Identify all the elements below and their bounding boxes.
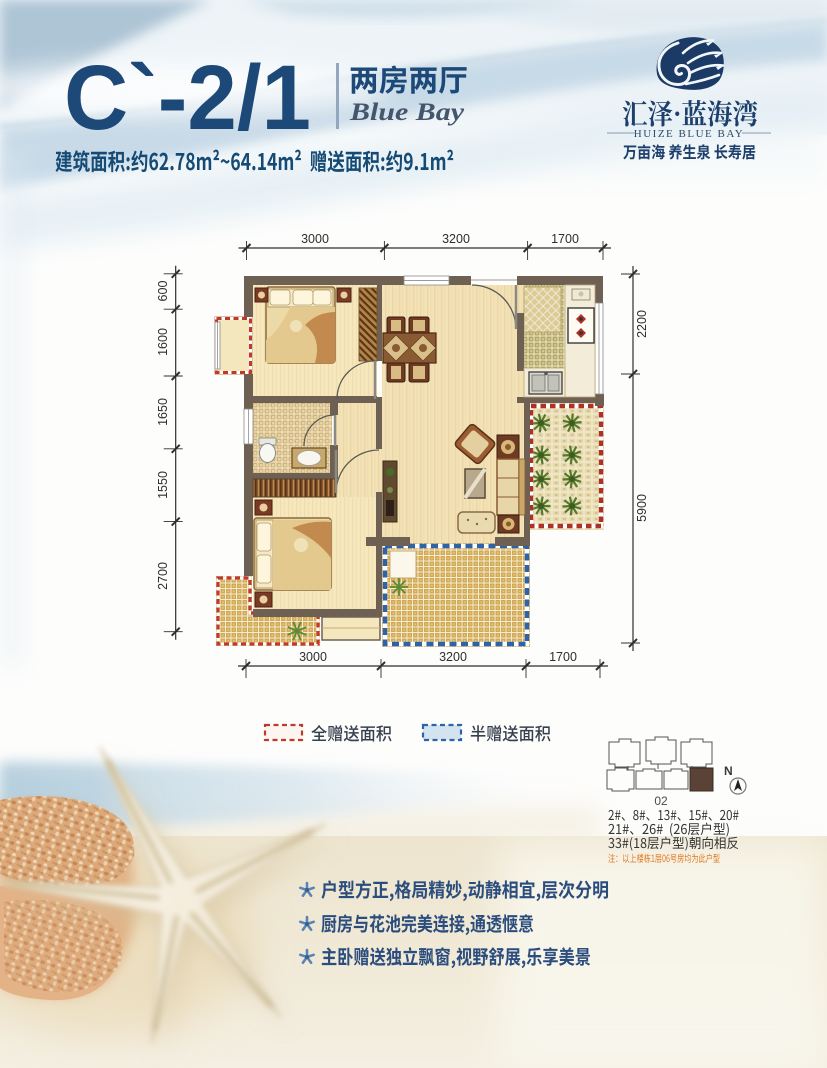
- svg-text:1550: 1550: [156, 471, 170, 499]
- svg-text:02: 02: [654, 794, 668, 808]
- svg-text:5900: 5900: [635, 494, 649, 522]
- svg-text:3000: 3000: [299, 650, 327, 664]
- svg-text:C`-2/1: C`-2/1: [64, 47, 311, 149]
- svg-text:1700: 1700: [549, 650, 577, 664]
- svg-text:3200: 3200: [442, 232, 470, 246]
- svg-text:2700: 2700: [156, 562, 170, 590]
- svg-text:1700: 1700: [551, 232, 579, 246]
- svg-text:2200: 2200: [635, 310, 649, 338]
- svg-text:HUIZE BLUE BAY: HUIZE BLUE BAY: [634, 128, 744, 140]
- svg-text:600: 600: [156, 281, 170, 302]
- svg-text:3000: 3000: [301, 232, 329, 246]
- svg-text:Blue Bay: Blue Bay: [349, 99, 465, 126]
- svg-text:1600: 1600: [156, 328, 170, 356]
- svg-text:3200: 3200: [439, 650, 467, 664]
- svg-text:N: N: [724, 764, 733, 778]
- svg-text:1650: 1650: [156, 398, 170, 426]
